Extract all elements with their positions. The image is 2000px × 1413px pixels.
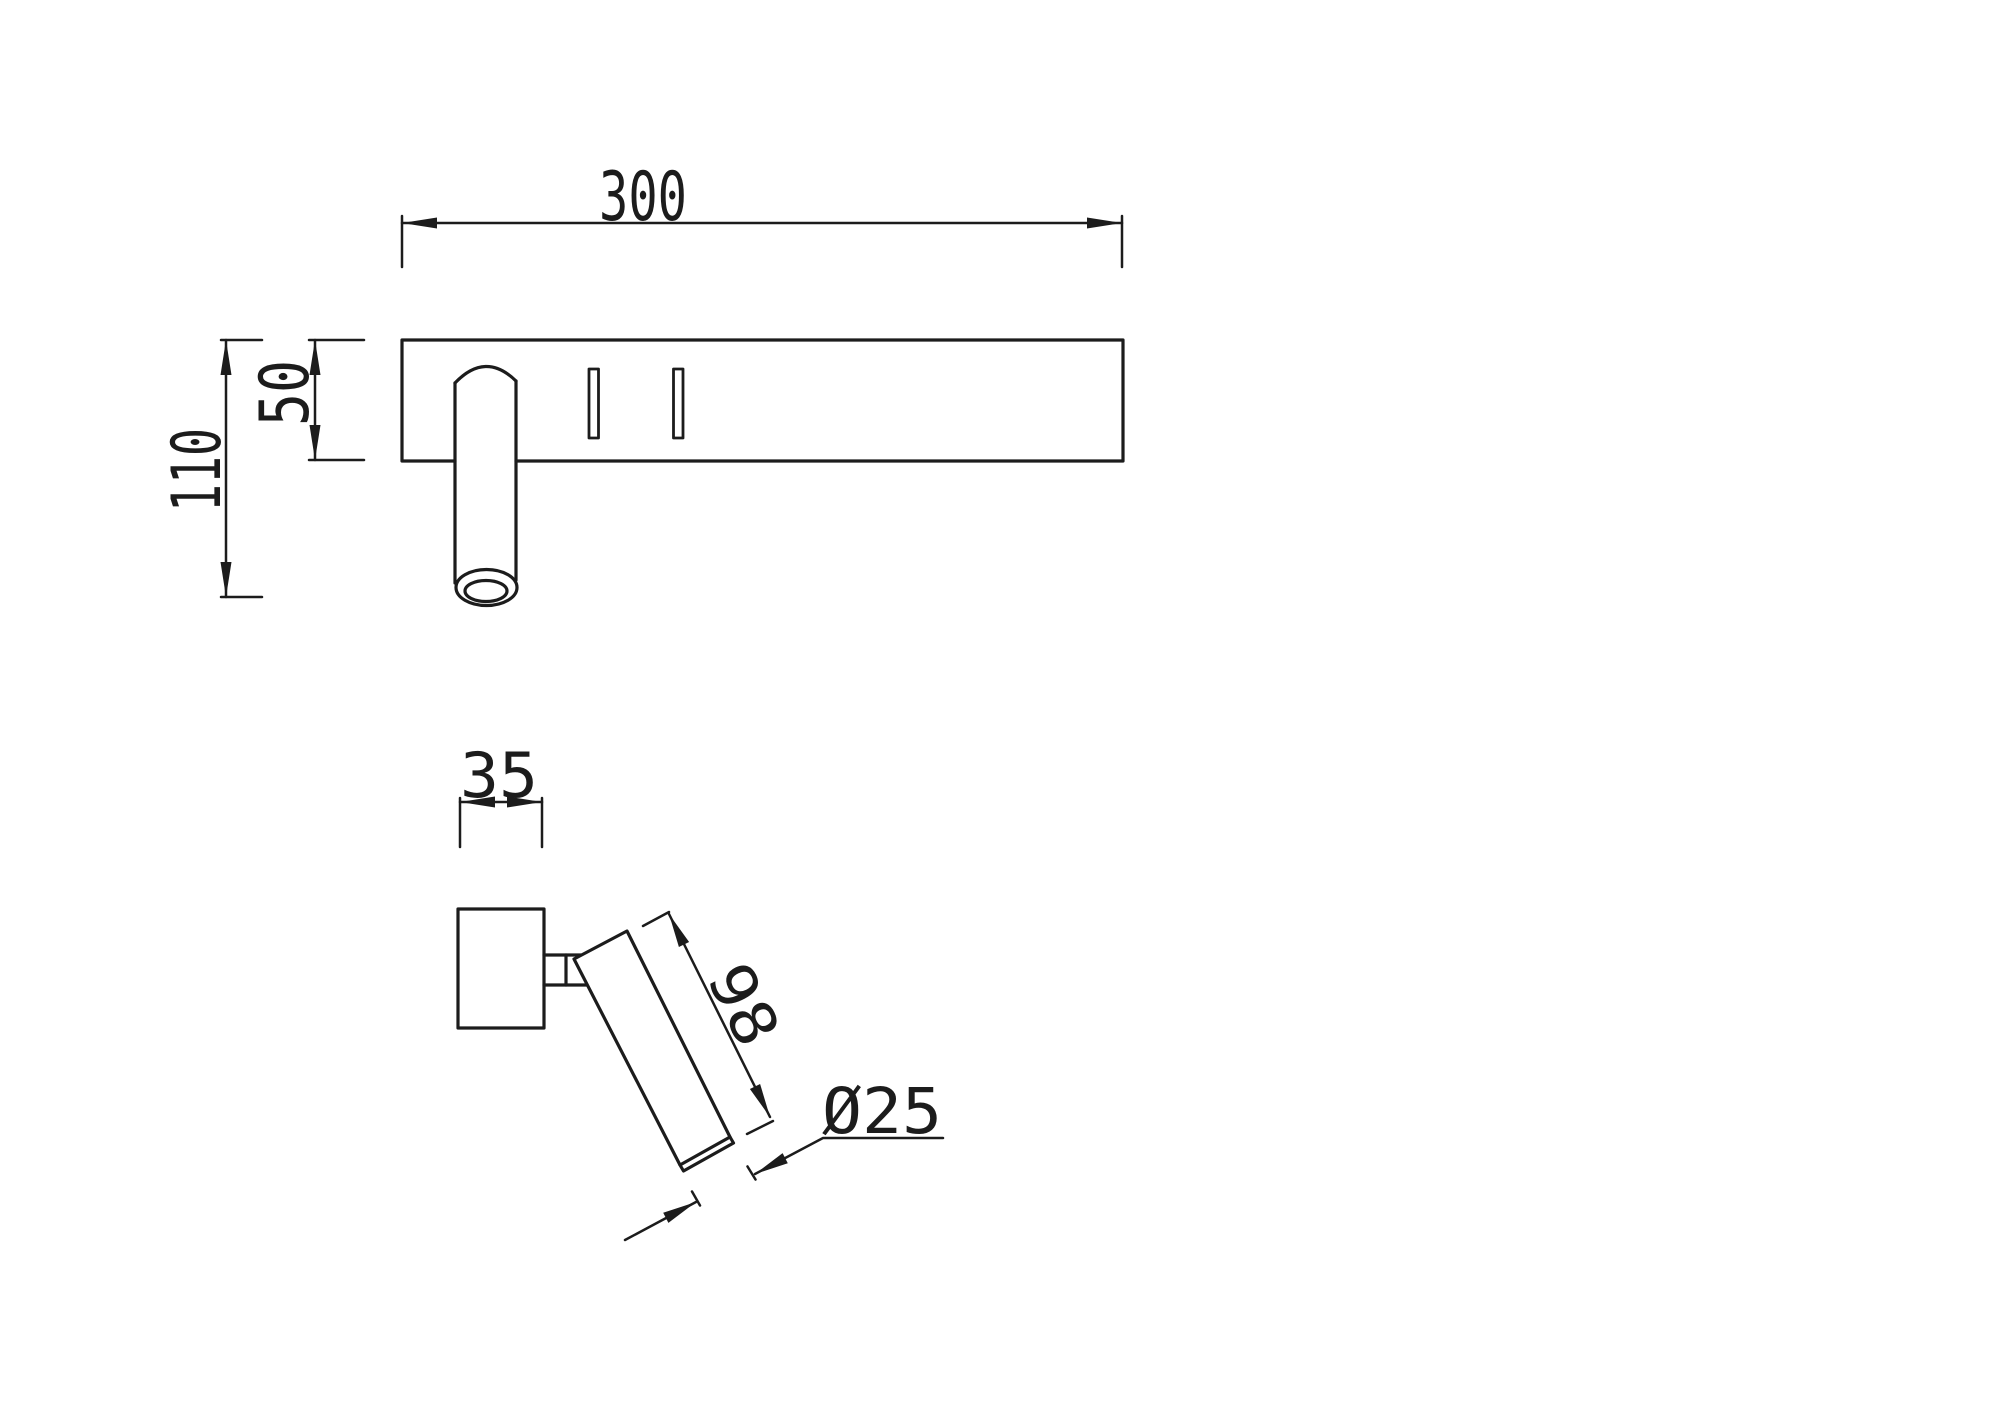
dim-25-arrow-upper xyxy=(755,1153,788,1174)
dim-300-arrow-left xyxy=(402,218,437,229)
dim-98-arrow-top xyxy=(669,914,689,947)
reading-light-tube xyxy=(455,366,517,605)
dim-98-tick-bottom xyxy=(747,1121,773,1134)
side-plate-outline xyxy=(458,909,544,1028)
dim-98-label: 98 xyxy=(693,952,795,1058)
dim-110-arrow-up xyxy=(221,340,232,375)
switch-slot-left xyxy=(589,369,599,438)
front-dimension-lines xyxy=(221,216,1122,597)
technical-drawing-canvas: 300 110 50 xyxy=(0,0,2000,1413)
dim-25-label: Ø25 xyxy=(822,1075,942,1148)
dim-110-arrow-down xyxy=(221,562,232,597)
dim-300-arrow-right xyxy=(1087,218,1122,229)
dim-110-label: 110 xyxy=(158,428,237,512)
tube-lens xyxy=(465,581,507,602)
dim-35-label: 35 xyxy=(460,739,538,812)
front-dimension-arrows xyxy=(221,218,1123,598)
dim-25-arrow-lower xyxy=(663,1202,696,1223)
front-dimension-labels: 300 110 50 xyxy=(158,158,687,512)
spot-head xyxy=(574,931,734,1171)
dim-300-label: 300 xyxy=(599,158,687,237)
dim-98-tick-top xyxy=(643,912,669,926)
tube-top-dome xyxy=(455,366,516,383)
wall-lamp-dimension-drawing: 300 110 50 xyxy=(0,0,2000,1413)
wall-plate-outline xyxy=(402,340,1123,461)
spot-head-body xyxy=(574,931,730,1165)
dim-50-label: 50 xyxy=(246,360,325,426)
dim-98-arrow-bottom xyxy=(750,1084,770,1117)
dim-50-arrow-down xyxy=(310,425,321,460)
switch-slot-right xyxy=(674,369,684,438)
side-view: 35 98 Ø25 xyxy=(458,739,943,1240)
front-view: 300 110 50 xyxy=(158,158,1123,606)
side-dimension-lines xyxy=(460,798,943,1240)
